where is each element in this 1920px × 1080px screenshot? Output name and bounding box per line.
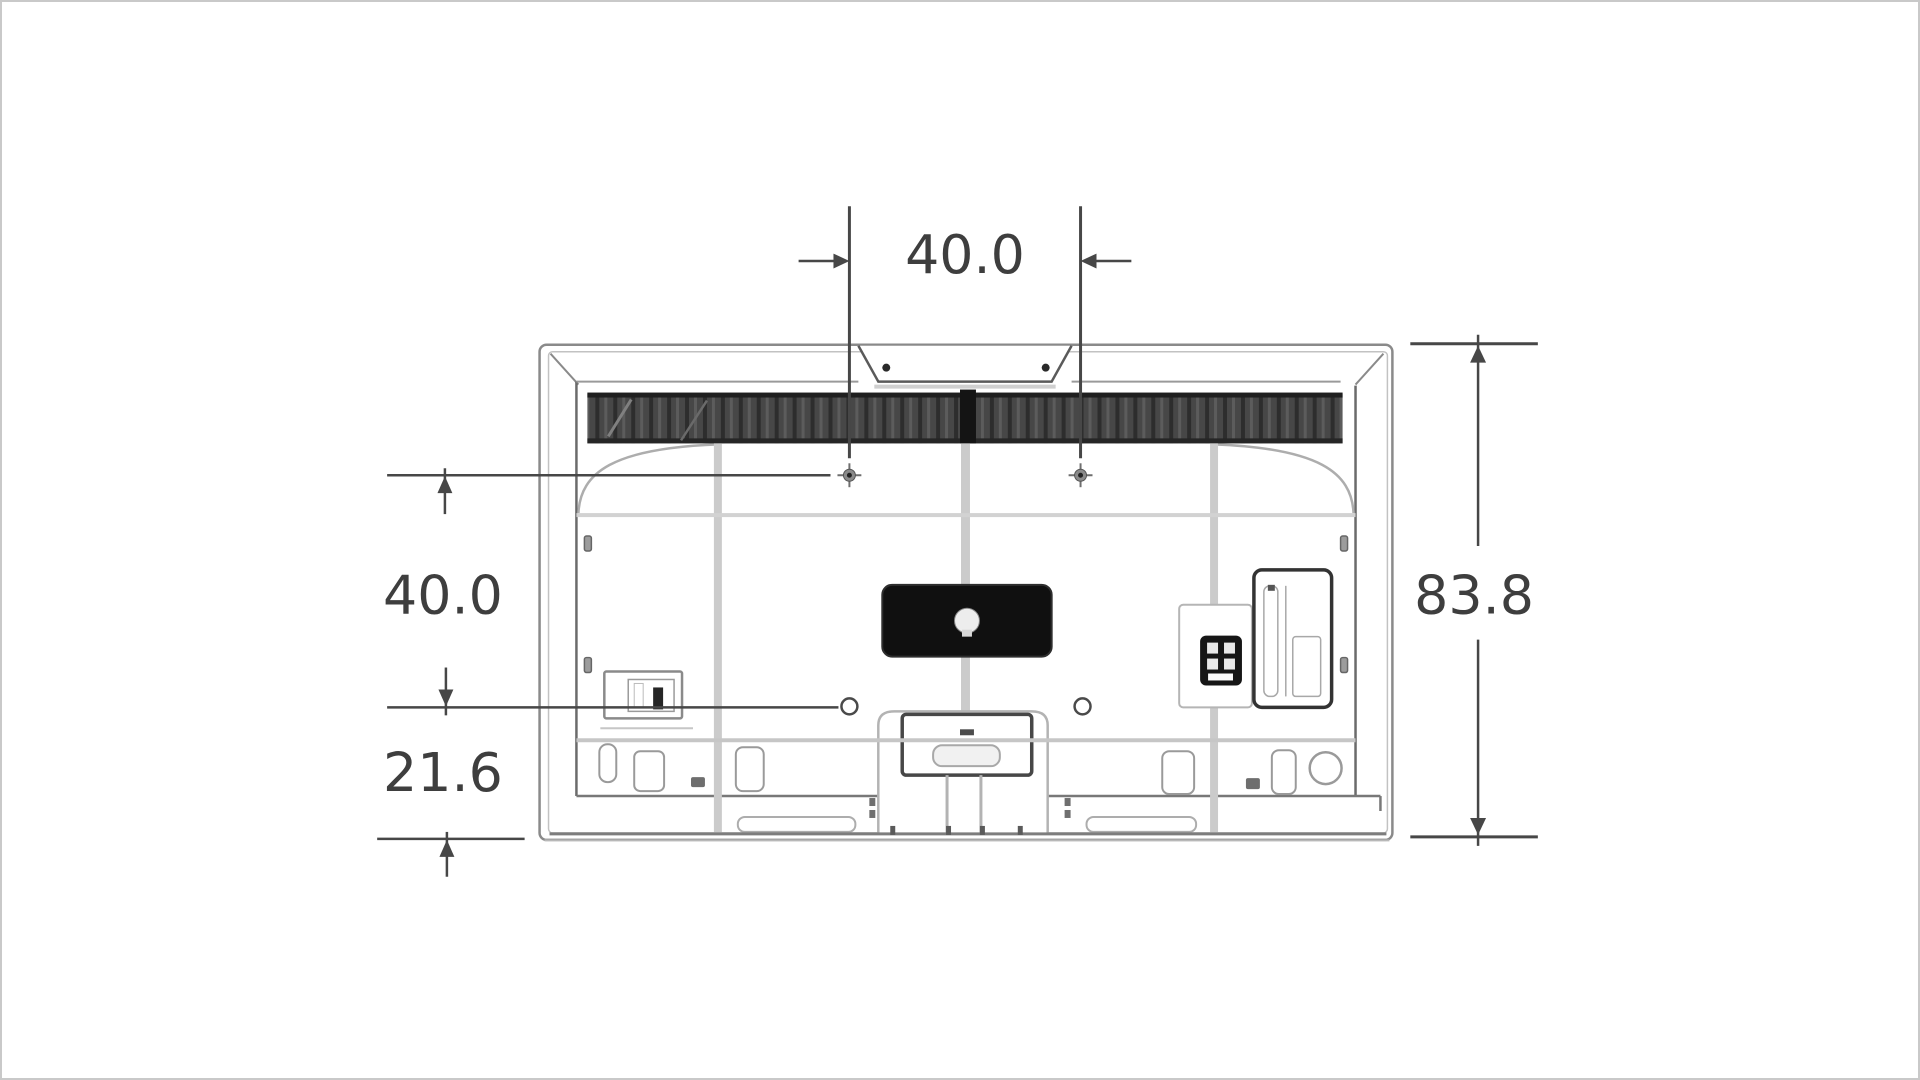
plate-bar xyxy=(634,683,643,707)
bottom-nub xyxy=(890,826,895,835)
seam-left-vertical xyxy=(714,443,722,834)
bottom-nub xyxy=(980,826,985,835)
stand-pin xyxy=(1065,810,1071,818)
dim-label-vesa-width: 40.0 xyxy=(905,223,1025,286)
connector-slot xyxy=(1208,674,1233,681)
vent-dash xyxy=(691,777,705,787)
handle-outline xyxy=(858,346,1071,382)
stand-latch xyxy=(933,745,1000,766)
handle-dot-left xyxy=(882,364,890,372)
speaker-grille xyxy=(587,390,1342,444)
dim-label-overall-height: 83.8 xyxy=(1414,564,1534,627)
vesa-hole-bottom-right xyxy=(1075,698,1091,714)
terminal-mark xyxy=(1268,585,1275,591)
dim-label-vesa-height: 40.0 xyxy=(383,564,503,627)
vent-slot xyxy=(1272,750,1296,794)
handle-dot-right xyxy=(1042,364,1050,372)
bolt-left-upper xyxy=(584,536,591,551)
arrow-head-up xyxy=(437,476,452,493)
screenshot-frame: 40.0 40.0 21.6 83.8 xyxy=(0,0,1920,1080)
bolt-left-lower xyxy=(584,658,591,673)
foot-pad-left xyxy=(738,817,856,832)
seam-center-vertical xyxy=(961,443,970,711)
seam-upper-horizontal xyxy=(576,513,1355,517)
grille-center-bar xyxy=(960,390,976,444)
arrow-head-up xyxy=(1470,346,1486,363)
stand-mount xyxy=(869,711,1070,835)
io-circle xyxy=(955,608,980,633)
connector-pin xyxy=(1207,659,1218,670)
connector-pin xyxy=(1207,643,1218,654)
stand-pin xyxy=(869,798,875,806)
vent-slot xyxy=(599,744,616,782)
arrow-head-up xyxy=(439,840,454,857)
io-circle-notch xyxy=(962,630,972,637)
vesa-hole-bottom-left xyxy=(841,698,857,714)
stand-mark xyxy=(960,729,974,735)
seam-lower-horizontal xyxy=(576,738,1355,742)
stand-pin xyxy=(869,810,875,818)
vent-slot xyxy=(634,751,664,791)
vent-dash xyxy=(1246,778,1260,789)
right-dimension: 83.8 xyxy=(1410,335,1538,846)
arrow-head-down xyxy=(1470,818,1486,835)
bottom-nub xyxy=(946,826,951,835)
dim-label-bottom-offset: 21.6 xyxy=(383,741,503,804)
vent-circle xyxy=(1310,752,1342,784)
bolt-right-upper xyxy=(1341,536,1348,551)
arrow-head xyxy=(1081,254,1097,269)
vent-slot xyxy=(1162,751,1194,794)
vent-slot xyxy=(736,747,764,791)
io-module xyxy=(882,585,1051,657)
bolt-right-lower xyxy=(1341,658,1348,673)
foot-pad-right xyxy=(1087,817,1197,832)
tv-rear-diagram: 40.0 40.0 21.6 83.8 xyxy=(2,2,1918,1078)
stand-pin xyxy=(1065,798,1071,806)
plate-dark-bar xyxy=(653,687,663,709)
top-handle xyxy=(858,346,1071,387)
arrow-head xyxy=(833,254,849,269)
connector-pin xyxy=(1224,659,1235,670)
connector-pin xyxy=(1224,643,1235,654)
arrow-head-down xyxy=(438,689,453,706)
bottom-nub xyxy=(1018,826,1023,835)
